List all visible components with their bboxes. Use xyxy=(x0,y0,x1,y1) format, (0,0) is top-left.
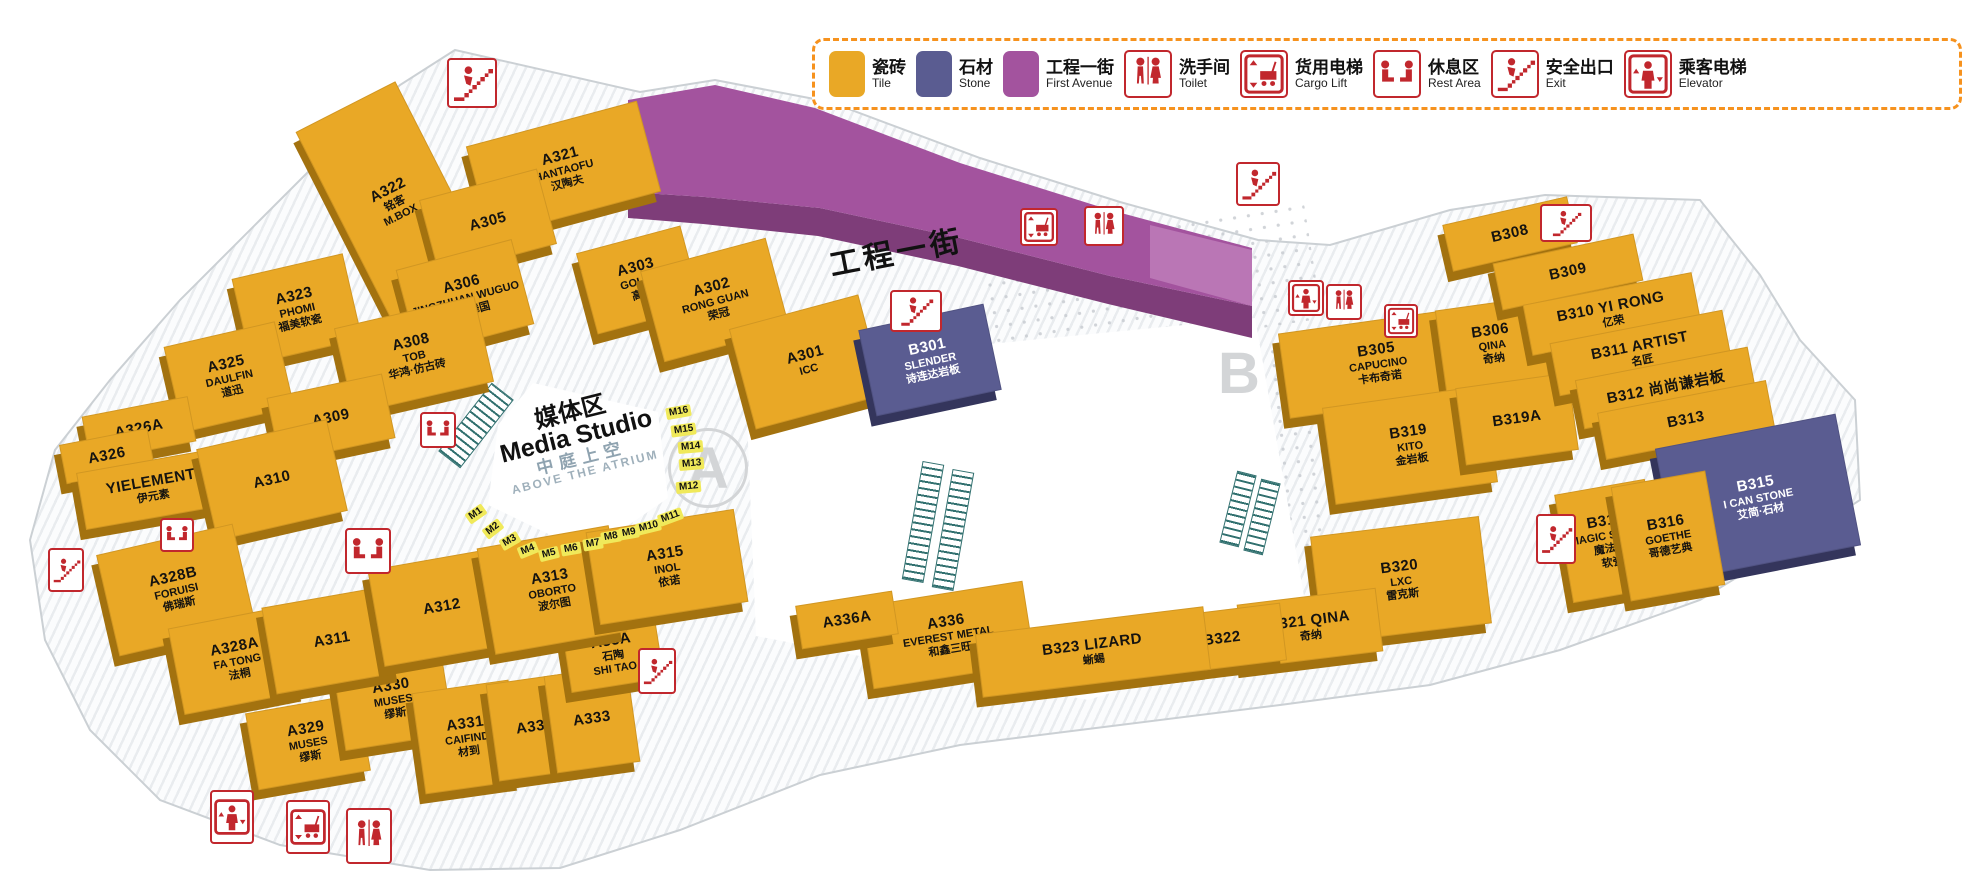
booth-code: A333 xyxy=(572,709,612,730)
legend-label-cn: 乘客电梯 xyxy=(1679,58,1747,78)
toilet-icon xyxy=(1124,50,1172,98)
exit-icon xyxy=(447,58,497,108)
legend: 瓷砖Tile石材Stone工程一街First Avenue洗手间Toilet货用… xyxy=(812,38,1962,110)
exit-icon xyxy=(1236,162,1280,206)
exit-icon xyxy=(890,290,942,332)
booth-code: B319A xyxy=(1492,408,1543,430)
avenue-swatch xyxy=(1003,51,1039,97)
toilet-icon xyxy=(1326,284,1362,320)
legend-item-cargo-lift: 货用电梯Cargo Lift xyxy=(1240,50,1363,98)
exit-icon xyxy=(638,648,676,694)
elevator-icon xyxy=(1288,280,1324,316)
booth-subtitle: 缪斯 xyxy=(382,706,410,722)
legend-item-tile: 瓷砖Tile xyxy=(829,51,906,97)
exit-icon xyxy=(48,548,84,592)
legend-item-toilet: 洗手间Toilet xyxy=(1124,50,1230,98)
booth-subtitle: SHI TAO xyxy=(591,659,640,679)
zone-b-letter: B xyxy=(1218,340,1260,407)
media-slot-m14: M14 xyxy=(678,440,704,454)
booth-code: A305 xyxy=(468,209,509,234)
cargo-lift-icon xyxy=(1240,50,1288,98)
legend-label-en: Stone xyxy=(959,77,993,90)
booth-code: B313 xyxy=(1666,409,1706,432)
booth-code: A310 xyxy=(252,468,292,492)
booth-subtitle: 奇纳 xyxy=(1480,351,1507,367)
booth-code: A311 xyxy=(312,629,351,651)
booth-subtitle: 奇纳 xyxy=(1297,629,1324,644)
booth-b316: B316GOETHE哥德艺典 xyxy=(1611,471,1726,602)
booth-subtitle: 蜥蜴 xyxy=(1080,653,1107,668)
booth-code: B308 xyxy=(1490,222,1530,246)
legend-label-cn: 工程一街 xyxy=(1046,58,1114,78)
rest-area-icon xyxy=(420,412,456,448)
toilet-icon xyxy=(1084,206,1124,246)
elevator-icon xyxy=(210,790,254,844)
exit-icon xyxy=(1540,204,1592,242)
legend-label-cn: 货用电梯 xyxy=(1295,58,1363,78)
elevator-icon xyxy=(1624,50,1672,98)
legend-label-en: Cargo Lift xyxy=(1295,77,1363,90)
exit-icon xyxy=(1536,514,1576,564)
cargo-lift-icon xyxy=(286,800,330,854)
legend-item-avenue: 工程一街First Avenue xyxy=(1003,51,1114,97)
legend-label-cn: 安全出口 xyxy=(1546,58,1614,78)
exhibition-floor-map: A B 工程一街 媒体区 Media Studio 中庭上空 ABOVE THE… xyxy=(0,0,1966,873)
legend-label-en: Elevator xyxy=(1679,77,1747,90)
legend-label-cn: 休息区 xyxy=(1428,58,1481,78)
booth-subtitle: 材到 xyxy=(455,744,482,760)
legend-item-elevator: 乘客电梯Elevator xyxy=(1624,50,1747,98)
rest-area-icon xyxy=(1373,50,1421,98)
legend-label-en: Exit xyxy=(1546,77,1614,90)
media-slot-m13: M13 xyxy=(679,457,705,471)
legend-item-exit: 安全出口Exit xyxy=(1491,50,1614,98)
stone-swatch xyxy=(916,51,952,97)
legend-label-cn: 洗手间 xyxy=(1179,58,1230,78)
cargo-lift-icon xyxy=(1020,208,1058,246)
legend-item-rest-area: 休息区Rest Area xyxy=(1373,50,1481,98)
legend-label-en: Toilet xyxy=(1179,77,1230,90)
legend-label-en: Tile xyxy=(872,77,906,90)
booth-code: B309 xyxy=(1548,260,1588,283)
legend-label-cn: 瓷砖 xyxy=(872,58,906,78)
booth-code: A336A xyxy=(821,608,872,631)
toilet-icon xyxy=(346,808,392,864)
legend-label-en: Rest Area xyxy=(1428,77,1481,90)
exit-icon xyxy=(1491,50,1539,98)
legend-label-cn: 石材 xyxy=(959,58,993,78)
tile-swatch xyxy=(829,51,865,97)
media-slot-m12: M12 xyxy=(676,480,702,494)
rest-area-icon xyxy=(345,528,391,574)
legend-label-en: First Avenue xyxy=(1046,77,1114,90)
cargo-lift-icon xyxy=(1384,304,1418,338)
legend-item-stone: 石材Stone xyxy=(916,51,993,97)
rest-area-icon xyxy=(160,518,194,552)
booth-code: A312 xyxy=(422,596,462,618)
booth-subtitle: 依诺 xyxy=(656,574,684,590)
